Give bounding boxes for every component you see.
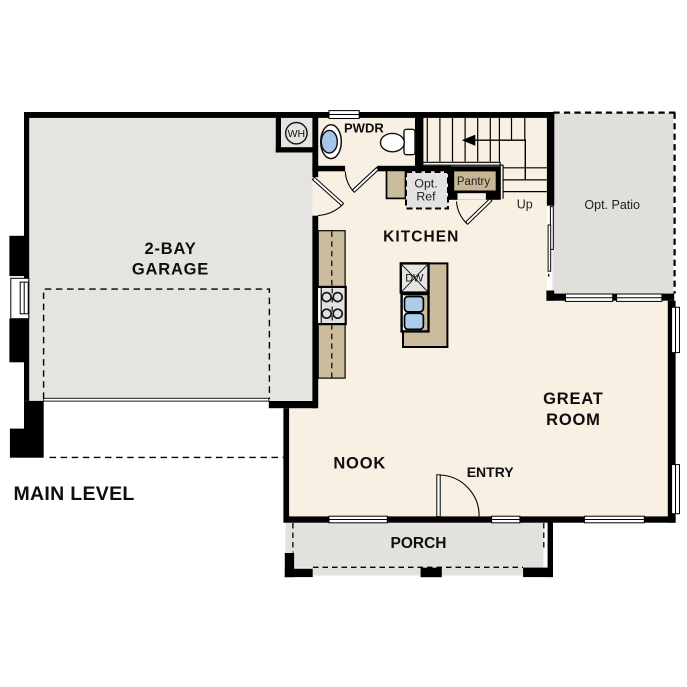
svg-text:PWDR: PWDR	[344, 121, 384, 136]
svg-text:Opt. Patio: Opt. Patio	[584, 198, 640, 212]
svg-text:Ref: Ref	[416, 190, 436, 204]
svg-text:GREAT: GREAT	[543, 390, 604, 408]
svg-text:KITCHEN: KITCHEN	[383, 228, 459, 245]
svg-text:WH: WH	[288, 128, 306, 140]
svg-text:ENTRY: ENTRY	[467, 464, 515, 480]
svg-text:Pantry: Pantry	[457, 176, 490, 188]
svg-text:NOOK: NOOK	[333, 454, 386, 472]
svg-text:2-BAY: 2-BAY	[145, 240, 197, 258]
svg-text:DW: DW	[405, 272, 424, 284]
svg-text:GARAGE: GARAGE	[132, 261, 209, 279]
svg-text:ROOM: ROOM	[546, 411, 601, 429]
svg-text:Opt.: Opt.	[414, 177, 437, 191]
svg-text:MAIN LEVEL: MAIN LEVEL	[14, 483, 135, 505]
svg-text:PORCH: PORCH	[391, 535, 447, 552]
svg-text:Up: Up	[517, 198, 533, 212]
